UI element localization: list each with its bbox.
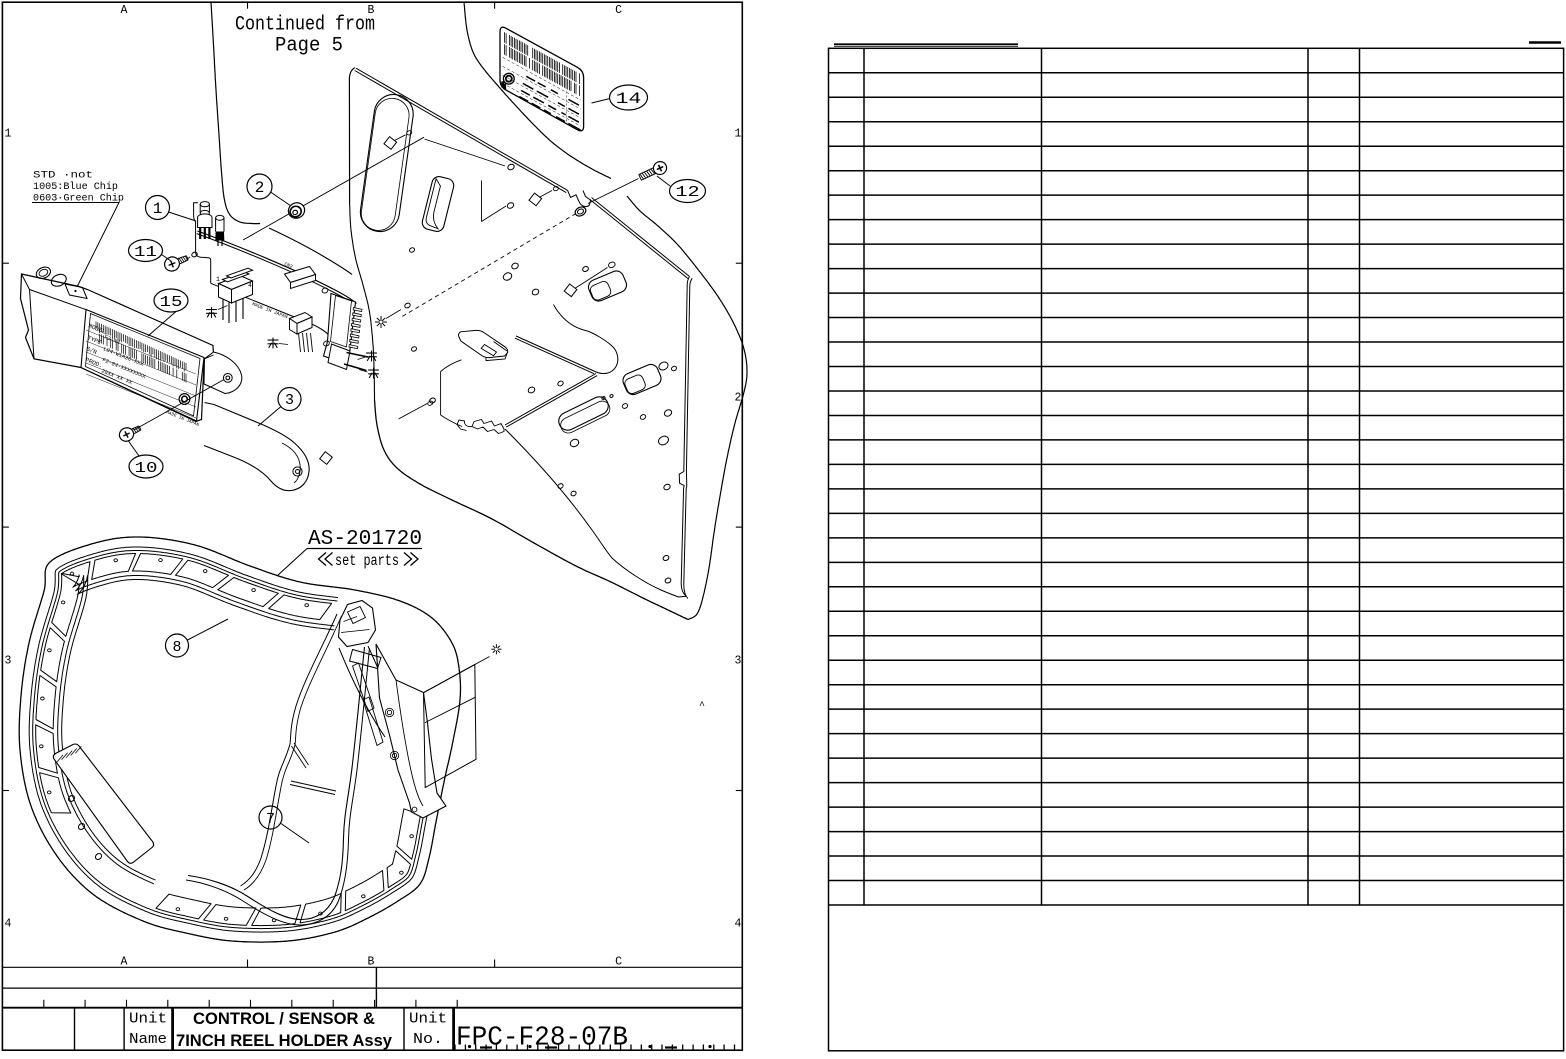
svg-text:3: 3 [735, 655, 742, 668]
svg-text:3: 3 [285, 392, 294, 409]
svg-text:4: 4 [248, 282, 252, 289]
svg-text:B: B [368, 956, 375, 969]
svg-text:Name: Name [129, 1032, 167, 1048]
svg-text:A: A [121, 956, 128, 969]
svg-text:Unit: Unit [409, 1011, 447, 1027]
svg-text:1: 1 [735, 128, 742, 141]
svg-text:12: 12 [675, 184, 699, 201]
svg-text:1: 1 [5, 128, 12, 141]
svg-text:15: 15 [160, 294, 183, 311]
svg-text:8: 8 [172, 639, 181, 656]
svg-text:Continued from: Continued from [235, 14, 375, 37]
svg-text:Page 5: Page 5 [275, 35, 343, 58]
svg-text:7: 7 [266, 811, 275, 828]
svg-text:4: 4 [5, 918, 12, 931]
svg-text:CONTROL / SENSOR &: CONTROL / SENSOR & [193, 1009, 375, 1028]
svg-text:4: 4 [735, 918, 742, 931]
svg-text:1005:Blue Chip: 1005:Blue Chip [33, 181, 118, 193]
svg-text:C: C [615, 4, 622, 17]
svg-text:FPC-F28-07B: FPC-F28-07B [456, 1024, 628, 1054]
svg-text:No.: No. [413, 1032, 443, 1048]
svg-text:7INCH REEL HOLDER Assy: 7INCH REEL HOLDER Assy [176, 1031, 393, 1050]
svg-text:A: A [121, 4, 128, 17]
svg-text:AS-201720: AS-201720 [308, 528, 422, 551]
svg-text:14: 14 [616, 90, 642, 108]
svg-text:^: ^ [699, 701, 705, 712]
svg-text:2: 2 [255, 179, 265, 197]
svg-text:3: 3 [5, 655, 12, 668]
svg-text:1: 1 [153, 200, 163, 218]
svg-text:1: 1 [216, 276, 220, 283]
svg-text:10: 10 [135, 460, 158, 477]
svg-text:Unit: Unit [129, 1011, 167, 1027]
svg-text:set parts: set parts [335, 552, 399, 570]
svg-text:STD ·not: STD ·not [33, 171, 93, 182]
svg-text:C: C [615, 956, 622, 969]
svg-text:11: 11 [134, 244, 157, 261]
